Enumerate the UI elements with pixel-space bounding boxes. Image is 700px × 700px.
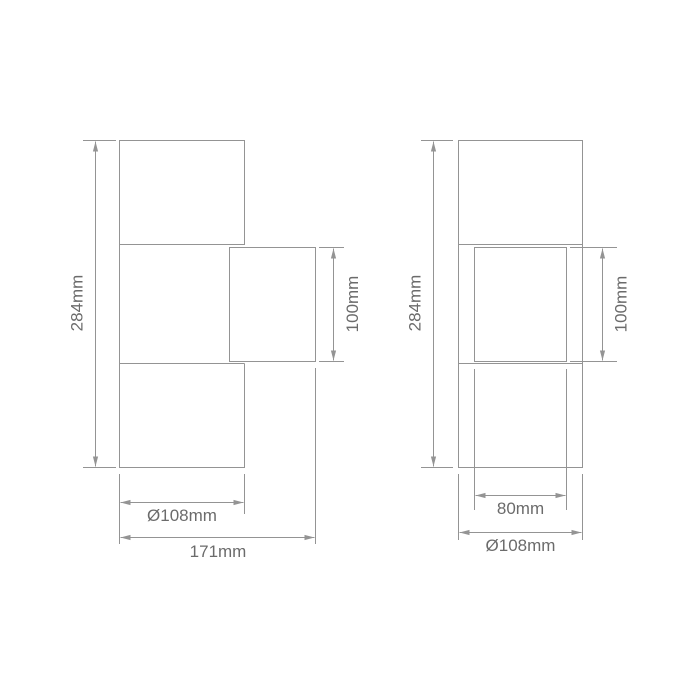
side-lamp-head-outline	[230, 248, 316, 362]
side-diameter-dimension: Ø108mm	[120, 474, 245, 544]
front-inner-width-dimension-label: 80mm	[497, 499, 544, 518]
side-bottom-section-outline	[120, 364, 245, 468]
side-depth-dimension: 171mm	[121, 368, 316, 561]
side-height-dimension-label: 284mm	[68, 275, 87, 332]
front-head-height-dimension: 100mm	[570, 248, 631, 362]
side-depth-dimension-label: 171mm	[190, 542, 247, 561]
side-top-section-outline	[120, 141, 245, 245]
front-top-section-outline	[459, 141, 583, 245]
front-view-drawing: 284mm 100mm 80mm Ø108mm	[406, 141, 631, 556]
front-height-dimension-label: 284mm	[406, 275, 425, 332]
front-bottom-section-outline	[459, 364, 583, 468]
front-lamp-head-outline	[475, 248, 567, 362]
front-height-dimension: 284mm	[406, 141, 454, 468]
technical-drawing-canvas: 284mm 100mm Ø108mm 171mm	[0, 0, 700, 700]
side-head-height-dimension: 100mm	[319, 248, 362, 362]
side-diameter-dimension-label: Ø108mm	[147, 506, 217, 525]
dimension-drawing-svg: 284mm 100mm Ø108mm 171mm	[0, 0, 700, 700]
front-inner-width-dimension: 80mm	[476, 496, 566, 519]
side-view-drawing: 284mm 100mm Ø108mm 171mm	[68, 141, 363, 562]
side-head-height-dimension-label: 100mm	[343, 276, 362, 333]
front-head-height-dimension-label: 100mm	[612, 276, 631, 333]
front-diameter-dimension-label: Ø108mm	[486, 536, 556, 555]
side-height-dimension: 284mm	[68, 141, 117, 468]
